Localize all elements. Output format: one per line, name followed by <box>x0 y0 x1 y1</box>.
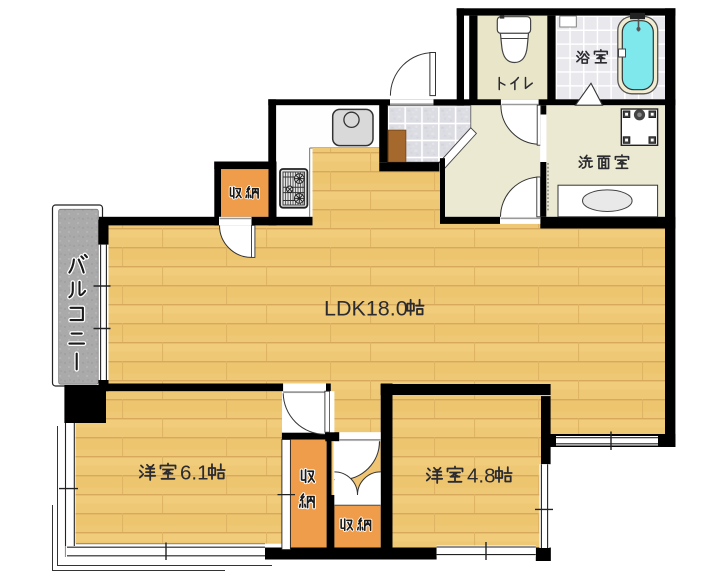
svg-text:4.8: 4.8 <box>467 465 496 488</box>
svg-text:6.1: 6.1 <box>180 462 209 485</box>
svg-text:LDK18.0: LDK18.0 <box>324 297 408 321</box>
